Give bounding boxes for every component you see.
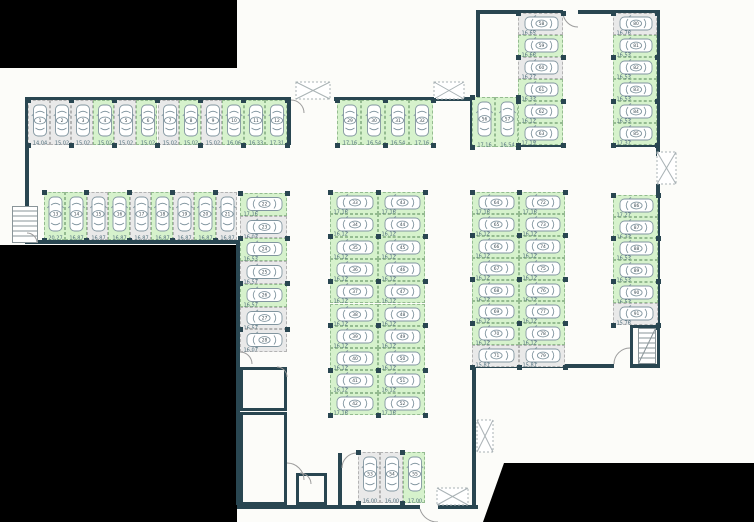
structural-pillar — [285, 327, 290, 332]
stall-number: 60 — [539, 65, 545, 71]
parking-stall[interactable]: 71 15.81 — [472, 345, 519, 367]
stall-number: 75 — [540, 266, 546, 272]
parking-stall[interactable]: 57 16.54 — [495, 97, 518, 147]
stall-number: 68 — [494, 288, 500, 294]
structural-pillar — [470, 95, 475, 100]
structural-pillar — [423, 190, 428, 195]
stall-number: 32 — [419, 118, 425, 124]
parking-stall[interactable]: 89 16.53 — [613, 260, 658, 282]
parking-stall[interactable]: 46 16.12 — [378, 259, 425, 281]
parking-stall[interactable]: 28 16.07 — [240, 329, 287, 352]
parking-stall[interactable]: 69 16.12 — [472, 301, 519, 323]
stall-dim: 16.33 — [249, 141, 263, 147]
stall-number: 69 — [494, 309, 500, 315]
parking-stall[interactable]: 62 16.12 — [518, 101, 563, 123]
parking-stall[interactable]: 48 16.12 — [378, 304, 425, 326]
parking-stall[interactable]: 21 16.87 — [216, 192, 237, 240]
stall-number: 11 — [253, 118, 259, 124]
stall-number: 91 — [634, 311, 640, 317]
structural-pillar — [517, 190, 522, 195]
stall-number: 39 — [352, 334, 358, 340]
stall-number: 2 — [60, 118, 63, 124]
stall-dim: 16.87 — [134, 236, 148, 242]
parking-stall[interactable]: 34 16.12 — [330, 214, 378, 236]
parking-stall[interactable]: 44 16.12 — [378, 214, 425, 236]
parking-stall[interactable]: 47 16.12 — [378, 281, 425, 303]
structural-pillar — [84, 190, 89, 195]
parking-stall[interactable]: 88 16.53 — [613, 238, 658, 260]
door-arc-icon — [342, 453, 357, 468]
structural-pillar — [26, 143, 31, 148]
stall-number: 52 — [400, 401, 406, 407]
structural-pillar — [241, 143, 246, 148]
stall-number: 53 — [367, 472, 373, 478]
parking-stall[interactable]: 35 16.12 — [330, 237, 378, 259]
parking-stall[interactable]: 9 15.02 — [201, 100, 223, 145]
stall-number: 34 — [352, 222, 358, 228]
parking-stall[interactable]: 22 17.16 — [240, 193, 287, 216]
structural-pillar — [611, 11, 616, 16]
stall-number: 10 — [231, 118, 237, 124]
structural-pillar — [470, 145, 475, 150]
stall-number: 89 — [634, 268, 640, 274]
stall-dim: 15.81 — [523, 363, 537, 369]
stall-number: 26 — [262, 292, 268, 298]
parking-stall[interactable]: 55 17.00 — [403, 452, 425, 503]
stall-number: 63 — [539, 131, 545, 137]
parking-stall[interactable]: 78 16.12 — [519, 323, 565, 345]
stall-number: 82 — [633, 65, 639, 71]
structural-pillar — [611, 99, 616, 104]
door-arc-icon — [291, 100, 304, 113]
stall-number: 36 — [352, 267, 358, 273]
structural-pillar — [561, 11, 566, 16]
parking-stall[interactable]: 38 16.12 — [330, 304, 378, 326]
stall-dim: 15.02 — [98, 141, 112, 147]
parking-stall[interactable]: 56 17.16 — [472, 97, 495, 147]
structural-pillar — [611, 55, 616, 60]
stall-dim: 16.54 — [367, 141, 381, 147]
stall-number: 5 — [125, 118, 128, 124]
parking-stall[interactable]: 79 15.81 — [519, 345, 565, 367]
parking-stall[interactable]: 91 15.76 — [613, 303, 658, 325]
parking-stall[interactable]: 30 16.54 — [361, 100, 385, 145]
stall-number: 41 — [352, 378, 358, 384]
stall-dim: 20.27 — [48, 236, 62, 242]
stall-number: 7 — [168, 118, 171, 124]
parking-stall[interactable]: 23 16.03 — [240, 216, 287, 239]
parking-stall[interactable]: 49 16.12 — [378, 326, 425, 348]
stall-number: 77 — [540, 309, 546, 315]
structural-pillar — [400, 501, 405, 506]
parking-stall[interactable]: 11 16.33 — [244, 100, 266, 145]
stall-number: 24 — [262, 247, 268, 253]
stall-number: 56 — [482, 117, 488, 123]
structural-pillar — [517, 365, 522, 370]
stall-dim: 17.16 — [415, 141, 429, 147]
structural-pillar — [376, 279, 381, 284]
stall-number: 3 — [82, 118, 85, 124]
parking-stall[interactable]: 29 17.16 — [337, 100, 361, 145]
parking-stall[interactable]: 13 20.27 — [44, 192, 65, 240]
structural-pillar — [516, 55, 521, 60]
structural-pillar — [285, 281, 290, 286]
structural-pillar — [431, 98, 436, 103]
parking-stall[interactable]: 83 16.53 — [613, 79, 657, 101]
stall-dim: 17.16 — [343, 141, 357, 147]
stall-dim: 16.87 — [198, 236, 212, 242]
stall-dim: 15.02 — [119, 141, 133, 147]
parking-stall[interactable]: 7 15.02 — [158, 100, 180, 145]
parking-stall[interactable]: 25 16.57 — [240, 261, 287, 284]
stall-dim: 17.16 — [477, 143, 491, 149]
parking-stall[interactable]: 40 16.12 — [330, 348, 378, 370]
stall-number: 49 — [400, 334, 406, 340]
structural-pillar — [517, 321, 522, 326]
structural-pillar — [563, 277, 568, 282]
stall-number: 47 — [400, 289, 406, 295]
stall-number: 37 — [352, 289, 358, 295]
structural-pillar — [656, 323, 661, 328]
stall-dim: 16.87 — [177, 236, 191, 242]
parking-stall[interactable]: 59 16.66 — [518, 35, 563, 57]
parking-stall[interactable]: 33 17.16 — [330, 192, 378, 214]
structural-pillar — [563, 321, 568, 326]
structural-pillar — [328, 413, 333, 418]
parking-stall[interactable]: 2 15.02 — [50, 100, 72, 145]
structural-pillar — [561, 99, 566, 104]
structural-pillar — [238, 281, 243, 286]
stall-dim: 17.00 — [407, 499, 421, 505]
structural-pillar — [356, 501, 361, 506]
parking-stall[interactable]: 77 16.12 — [519, 301, 565, 323]
parking-stall[interactable]: 20 16.87 — [194, 192, 215, 240]
stall-number: 55 — [412, 472, 418, 478]
structural-pillar — [69, 143, 74, 148]
structural-pillar — [611, 323, 616, 328]
structural-pillar — [170, 238, 175, 243]
structural-pillar — [112, 98, 117, 103]
structural-pillar — [328, 234, 333, 239]
structural-pillar — [155, 143, 160, 148]
structural-pillar — [376, 368, 381, 373]
stall-number: 35 — [352, 245, 358, 251]
parking-stall[interactable]: 19 16.87 — [173, 192, 194, 240]
parking-stall[interactable]: 4 15.02 — [93, 100, 115, 145]
structural-pillar — [42, 238, 47, 243]
structural-pillar — [26, 98, 31, 103]
structural-pillar — [328, 190, 333, 195]
stall-number: 33 — [352, 200, 358, 206]
stall-number: 54 — [390, 472, 396, 478]
stall-dim: 16.00 — [385, 499, 399, 505]
structural-pillar — [335, 98, 340, 103]
parking-stall[interactable]: 61 16.33 — [518, 79, 563, 101]
structural-pillar — [238, 191, 243, 196]
parking-stall[interactable]: 70 16.12 — [472, 323, 519, 345]
stall-dim: 16.07 — [244, 348, 258, 354]
stall-number: 84 — [633, 109, 639, 115]
parking-stall[interactable]: 76 16.12 — [519, 280, 565, 302]
stall-number: 65 — [494, 222, 500, 228]
door-arc-icon — [614, 348, 630, 364]
stall-number: 18 — [160, 212, 166, 218]
parking-stall[interactable]: 41 16.12 — [330, 370, 378, 392]
stall-dim: 17.31 — [270, 141, 284, 147]
structural-pillar — [112, 143, 117, 148]
stall-number: 86 — [634, 203, 640, 209]
structural-pillar — [563, 190, 568, 195]
door-arc-icon — [240, 352, 252, 364]
parking-stall[interactable]: 84 16.53 — [613, 101, 657, 123]
parking-stall[interactable]: 52 17.16 — [378, 393, 425, 415]
parking-stall[interactable]: 45 16.12 — [378, 237, 425, 259]
stall-number: 88 — [634, 246, 640, 252]
stall-number: 1 — [39, 118, 42, 124]
parking-stall[interactable]: 12 17.31 — [265, 100, 287, 145]
parking-stall[interactable]: 80 16.76 — [613, 13, 657, 35]
structural-pillar — [335, 143, 340, 148]
structural-pillar — [563, 365, 568, 370]
stall-dim: 15.02 — [162, 141, 176, 147]
vent-shaft-x-icon — [657, 152, 676, 184]
parking-stall[interactable]: 16 16.87 — [108, 192, 129, 240]
parking-stall[interactable]: 72 17.16 — [519, 192, 565, 214]
stall-number: 58 — [539, 21, 545, 27]
parking-stall[interactable]: 65 16.12 — [472, 214, 519, 236]
structural-pillar — [238, 327, 243, 332]
stall-number: 45 — [400, 245, 406, 251]
parking-stall[interactable]: 87 16.33 — [613, 217, 658, 239]
stall-dim: 17.16 — [382, 410, 396, 416]
structural-pillar — [516, 99, 521, 104]
stall-dim: 15.02 — [184, 141, 198, 147]
parking-stall[interactable]: 74 16.12 — [519, 236, 565, 258]
parking-stall[interactable]: 66 16.12 — [472, 236, 519, 258]
parking-stall[interactable]: 36 16.12 — [330, 259, 378, 281]
stall-number: 66 — [494, 244, 500, 250]
structural-pillar — [328, 279, 333, 284]
parking-stall[interactable]: 39 16.12 — [330, 326, 378, 348]
stall-dim: 15.02 — [205, 141, 219, 147]
stall-number: 79 — [540, 353, 546, 359]
structural-pillar — [561, 143, 566, 148]
stall-number: 21 — [224, 212, 230, 218]
structural-pillar — [127, 190, 132, 195]
parking-stall[interactable]: 31 16.54 — [385, 100, 409, 145]
parking-stall[interactable]: 85 17.37 — [613, 123, 657, 145]
stall-number: 71 — [494, 353, 500, 359]
structural-pillar — [285, 191, 290, 196]
structural-pillar — [655, 99, 660, 104]
stall-number: 19 — [181, 212, 187, 218]
structural-pillar — [84, 238, 89, 243]
structural-pillar — [423, 279, 428, 284]
stall-dim: 16.87 — [113, 236, 127, 242]
stall-number: 40 — [352, 356, 358, 362]
stall-number: 83 — [633, 87, 639, 93]
structural-pillar — [423, 368, 428, 373]
stall-dim: 16.87 — [220, 236, 234, 242]
stall-number: 64 — [494, 200, 500, 206]
parking-stall[interactable]: 6 15.02 — [136, 100, 158, 145]
structural-pillar — [470, 365, 475, 370]
stall-number: 70 — [494, 331, 500, 337]
stall-number: 20 — [203, 212, 209, 218]
parking-stall[interactable]: 73 16.12 — [519, 214, 565, 236]
structural-pillar — [285, 98, 290, 103]
stall-number: 29 — [347, 118, 353, 124]
parking-stall[interactable]: 75 16.12 — [519, 258, 565, 280]
vent-shaft-x-icon — [434, 82, 464, 99]
structural-pillar — [356, 450, 361, 455]
stall-number: 67 — [494, 266, 500, 272]
structural-pillar — [400, 450, 405, 455]
stall-number: 62 — [539, 109, 545, 115]
parking-stall[interactable]: 60 16.27 — [518, 57, 563, 79]
structural-pillar — [328, 368, 333, 373]
structural-pillar — [376, 413, 381, 418]
stall-dim: 16.87 — [91, 236, 105, 242]
stall-number: 14 — [74, 212, 80, 218]
parking-stall[interactable]: 37 16.12 — [330, 281, 378, 303]
structural-pillar — [238, 236, 243, 241]
stall-number: 4 — [103, 118, 106, 124]
stall-dim: 17.19 — [522, 141, 536, 147]
parking-stall[interactable]: 67 16.12 — [472, 258, 519, 280]
structural-pillar — [516, 11, 521, 16]
parking-stall[interactable]: 3 15.02 — [71, 100, 93, 145]
structural-pillar — [470, 233, 475, 238]
stall-dim: 15.81 — [476, 363, 490, 369]
structural-pillar — [470, 277, 475, 282]
stall-number: 38 — [352, 312, 358, 318]
structural-pillar — [611, 236, 616, 241]
stall-number: 61 — [539, 87, 545, 93]
parking-stall[interactable]: 53 16.00 — [358, 452, 380, 503]
structural-pillar — [517, 233, 522, 238]
stall-dim: 14.04 — [33, 141, 47, 147]
vent-shaft-x-icon — [437, 488, 468, 505]
parking-stall[interactable]: 32 17.16 — [409, 100, 433, 145]
parking-stall[interactable]: 54 16.00 — [380, 452, 402, 503]
parking-stall[interactable]: 50 16.12 — [378, 348, 425, 370]
parking-stall[interactable]: 64 17.16 — [472, 192, 519, 214]
structural-pillar — [376, 234, 381, 239]
parking-stall[interactable]: 86 17.27 — [613, 195, 658, 217]
parking-stall[interactable]: 1 14.04 — [28, 100, 50, 145]
stall-number: 50 — [400, 356, 406, 362]
stall-number: 9 — [211, 118, 214, 124]
parking-stall[interactable]: 82 16.53 — [613, 57, 657, 79]
stall-number: 17 — [138, 212, 144, 218]
parking-stall[interactable]: 81 16.53 — [613, 35, 657, 57]
stall-number: 73 — [540, 222, 546, 228]
parking-stall[interactable]: 14 16.87 — [65, 192, 86, 240]
stall-number: 13 — [53, 212, 59, 218]
stall-dim: 17.16 — [334, 410, 348, 416]
stall-number: 80 — [633, 21, 639, 27]
stall-dim: 16.54 — [500, 143, 514, 149]
stall-number: 42 — [352, 401, 358, 407]
stall-number: 85 — [633, 131, 639, 137]
structural-pillar — [383, 143, 388, 148]
structural-pillar — [656, 236, 661, 241]
parking-stall[interactable]: 5 15.02 — [114, 100, 136, 145]
structural-pillar — [611, 279, 616, 284]
parking-stall[interactable]: 90 16.53 — [613, 282, 658, 304]
stall-number: 90 — [634, 290, 640, 296]
structural-pillar — [376, 190, 381, 195]
stall-number: 48 — [400, 312, 406, 318]
stall-dim: 16.54 — [391, 141, 405, 147]
structural-pillar — [517, 277, 522, 282]
stall-number: 8 — [190, 118, 193, 124]
parking-stall[interactable]: 26 16.57 — [240, 284, 287, 307]
stall-dim: 16.06 — [227, 141, 241, 147]
structural-pillar — [213, 238, 218, 243]
structural-pillar — [213, 190, 218, 195]
stall-number: 23 — [262, 224, 268, 230]
parking-stall[interactable]: 27 16.57 — [240, 307, 287, 330]
parking-stall[interactable]: 24 16.53 — [240, 238, 287, 261]
structural-pillar — [656, 193, 661, 198]
stall-number: 78 — [540, 331, 546, 337]
stall-number: 6 — [147, 118, 150, 124]
parking-stall[interactable]: 8 15.02 — [179, 100, 201, 145]
stall-dim: 15.02 — [54, 141, 68, 147]
structural-pillar — [285, 236, 290, 241]
stall-number: 28 — [262, 338, 268, 344]
structural-pillar — [470, 190, 475, 195]
parking-stall[interactable]: 58 16.65 — [518, 13, 563, 35]
stall-dim: 16.87 — [156, 236, 170, 242]
stall-number: 22 — [262, 202, 268, 208]
parking-stall[interactable]: 15 16.87 — [87, 192, 108, 240]
parking-stall[interactable]: 10 16.06 — [222, 100, 244, 145]
parking-stall[interactable]: 18 16.87 — [151, 192, 172, 240]
stairs-icon — [639, 329, 656, 364]
stall-number: 12 — [275, 118, 281, 124]
stall-number: 51 — [400, 378, 406, 384]
parking-stall[interactable]: 51 16.12 — [378, 370, 425, 392]
parking-stall[interactable]: 63 17.19 — [518, 123, 563, 145]
parking-stall[interactable]: 17 16.87 — [130, 192, 151, 240]
parking-stall[interactable]: 43 17.16 — [378, 192, 425, 214]
parking-stall[interactable]: 68 16.12 — [472, 280, 519, 302]
stall-number: 72 — [540, 200, 546, 206]
structural-pillar — [611, 143, 616, 148]
stall-number: 46 — [400, 267, 406, 273]
vent-shaft-x-icon — [477, 420, 493, 452]
structural-pillar — [655, 11, 660, 16]
stall-number: 16 — [117, 212, 123, 218]
structural-pillar — [470, 321, 475, 326]
structural-pillar — [516, 143, 521, 148]
stall-number: 59 — [539, 43, 545, 49]
structural-pillar — [423, 323, 428, 328]
parking-stall[interactable]: 42 17.16 — [330, 393, 378, 415]
stall-number: 57 — [505, 117, 511, 123]
structural-pillar — [563, 233, 568, 238]
structural-pillar — [285, 143, 290, 148]
stall-dim: 15.02 — [76, 141, 90, 147]
stall-number: 87 — [634, 225, 640, 231]
structural-pillar — [655, 55, 660, 60]
vent-shaft-x-icon — [296, 82, 330, 99]
stall-dim: 15.76 — [617, 321, 631, 327]
structural-pillar — [561, 55, 566, 60]
